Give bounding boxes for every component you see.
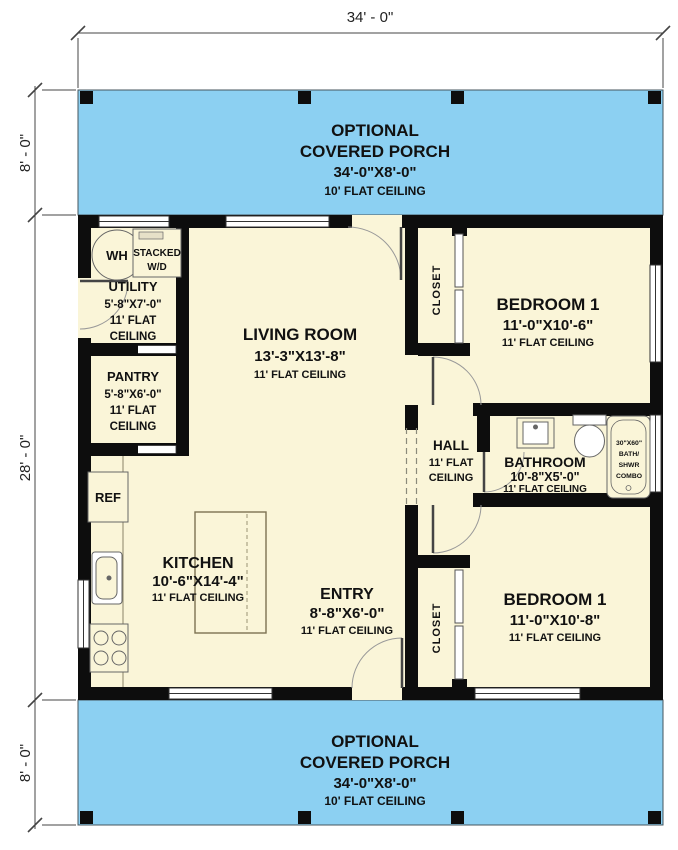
kitchen-name: KITCHEN bbox=[162, 555, 233, 572]
stacked-washer-dryer: STACKED W/D bbox=[133, 229, 181, 277]
bathroom-size: 10'-8"X5'-0" bbox=[510, 470, 579, 484]
wd-label-2: W/D bbox=[147, 262, 166, 273]
bedroom1-label: BEDROOM 1 11'-0"X10'-6" 11' FLAT CEILING bbox=[497, 295, 600, 349]
bathroom-vanity bbox=[517, 418, 554, 448]
bedroom2-size: 11'-0"X10'-8" bbox=[510, 612, 601, 629]
refrigerator: REF bbox=[88, 472, 128, 522]
porch-post bbox=[298, 811, 311, 824]
porch-post bbox=[648, 91, 661, 104]
porch-post bbox=[648, 811, 661, 824]
hall-ceiling-2: CEILING bbox=[429, 472, 474, 484]
utility-size: 5'-8"X7'-0" bbox=[104, 299, 161, 311]
pantry-size: 5'-8"X6'-0" bbox=[104, 389, 161, 401]
tub-label-3: SHWR bbox=[619, 462, 640, 469]
bedroom2-label: BEDROOM 1 11'-0"X10'-8" 11' FLAT CEILING bbox=[504, 590, 607, 644]
utility-ceiling-2: CEILING bbox=[110, 331, 157, 343]
bottom-porch-label-2: COVERED PORCH bbox=[300, 753, 450, 772]
living-size: 13'-3"X13'-8" bbox=[254, 348, 345, 365]
bedroom1-ceiling: 11' FLAT CEILING bbox=[502, 337, 594, 349]
range-stove bbox=[90, 624, 128, 672]
closet-top-label: CLOSET bbox=[431, 265, 443, 316]
kitchen-size: 10'-6"X14'-4" bbox=[152, 573, 243, 590]
hall-label: HALL 11' FLAT CEILING bbox=[429, 438, 474, 484]
ref-label: REF bbox=[95, 490, 121, 505]
wd-label-1: STACKED bbox=[133, 248, 181, 259]
entry-size: 8'-8"X6'-0" bbox=[310, 605, 385, 622]
pantry-ceiling-1: 11' FLAT bbox=[110, 405, 157, 417]
pantry-ceiling-2: CEILING bbox=[110, 421, 157, 433]
entry-name: ENTRY bbox=[320, 586, 374, 603]
floor-plan-page: 34' - 0" 8' - 0" 28' - 0" 8' - 0" OPTION… bbox=[0, 0, 678, 850]
porch-post bbox=[451, 811, 464, 824]
water-heater-label: WH bbox=[106, 248, 128, 263]
porch-post bbox=[298, 91, 311, 104]
living-name: LIVING ROOM bbox=[243, 325, 357, 344]
dim-overall-width: 34' - 0" bbox=[347, 9, 394, 26]
hall-name: HALL bbox=[433, 438, 469, 453]
dim-top-porch-depth: 8' - 0" bbox=[17, 134, 34, 172]
utility-name: UTILITY bbox=[108, 279, 157, 294]
bathroom-name: BATHROOM bbox=[504, 454, 585, 470]
hall-ceiling-1: 11' FLAT bbox=[429, 457, 474, 469]
kitchen-label: KITCHEN 10'-6"X14'-4" 11' FLAT CEILING bbox=[152, 555, 244, 604]
top-porch-size: 34'-0"X8'-0" bbox=[333, 164, 416, 181]
top-porch-label-2: COVERED PORCH bbox=[300, 142, 450, 161]
living-ceiling: 11' FLAT CEILING bbox=[254, 369, 346, 381]
utility-ceiling-1: 11' FLAT bbox=[110, 315, 157, 327]
porch-post bbox=[451, 91, 464, 104]
bottom-porch-ceiling: 10' FLAT CEILING bbox=[324, 794, 425, 808]
bedroom1-name: BEDROOM 1 bbox=[497, 295, 600, 314]
bath-shower-combo: 30"X60" BATH/ SHWR COMBO bbox=[607, 416, 650, 498]
porch-post bbox=[80, 811, 93, 824]
closet-bottom-label: CLOSET bbox=[431, 603, 443, 654]
bedroom2-ceiling: 11' FLAT CEILING bbox=[509, 632, 601, 644]
bedroom2-name: BEDROOM 1 bbox=[504, 590, 607, 609]
kitchen-ceiling: 11' FLAT CEILING bbox=[152, 592, 244, 604]
bottom-porch-label-1: OPTIONAL bbox=[331, 732, 419, 751]
top-porch-label-1: OPTIONAL bbox=[331, 121, 419, 140]
top-porch: OPTIONAL COVERED PORCH 34'-0"X8'-0" 10' … bbox=[78, 90, 663, 215]
pantry-name: PANTRY bbox=[107, 369, 159, 384]
top-porch-ceiling: 10' FLAT CEILING bbox=[324, 184, 425, 198]
dim-bottom-porch-depth: 8' - 0" bbox=[17, 744, 34, 782]
toilet bbox=[573, 415, 606, 457]
living-room-label: LIVING ROOM 13'-3"X13'-8" 11' FLAT CEILI… bbox=[243, 325, 357, 381]
entry-ceiling: 11' FLAT CEILING bbox=[301, 625, 393, 637]
bedroom1-size: 11'-0"X10'-6" bbox=[503, 317, 594, 334]
dim-main-depth: 28' - 0" bbox=[17, 435, 34, 482]
bottom-porch: OPTIONAL COVERED PORCH 34'-0"X8'-0" 10' … bbox=[78, 700, 663, 825]
tub-label-4: COMBO bbox=[616, 473, 642, 480]
tub-label-1: 30"X60" bbox=[616, 440, 642, 447]
bottom-porch-size: 34'-0"X8'-0" bbox=[333, 775, 416, 792]
bathroom-label: BATHROOM 10'-8"X5'-0" 11' FLAT CEILING bbox=[503, 454, 587, 495]
tub-label-2: BATH/ bbox=[619, 451, 639, 458]
porch-post bbox=[80, 91, 93, 104]
kitchen-sink bbox=[92, 552, 122, 604]
floor-plan-drawing: 34' - 0" 8' - 0" 28' - 0" 8' - 0" OPTION… bbox=[0, 0, 678, 850]
bathroom-ceiling: 11' FLAT CEILING bbox=[503, 484, 587, 495]
